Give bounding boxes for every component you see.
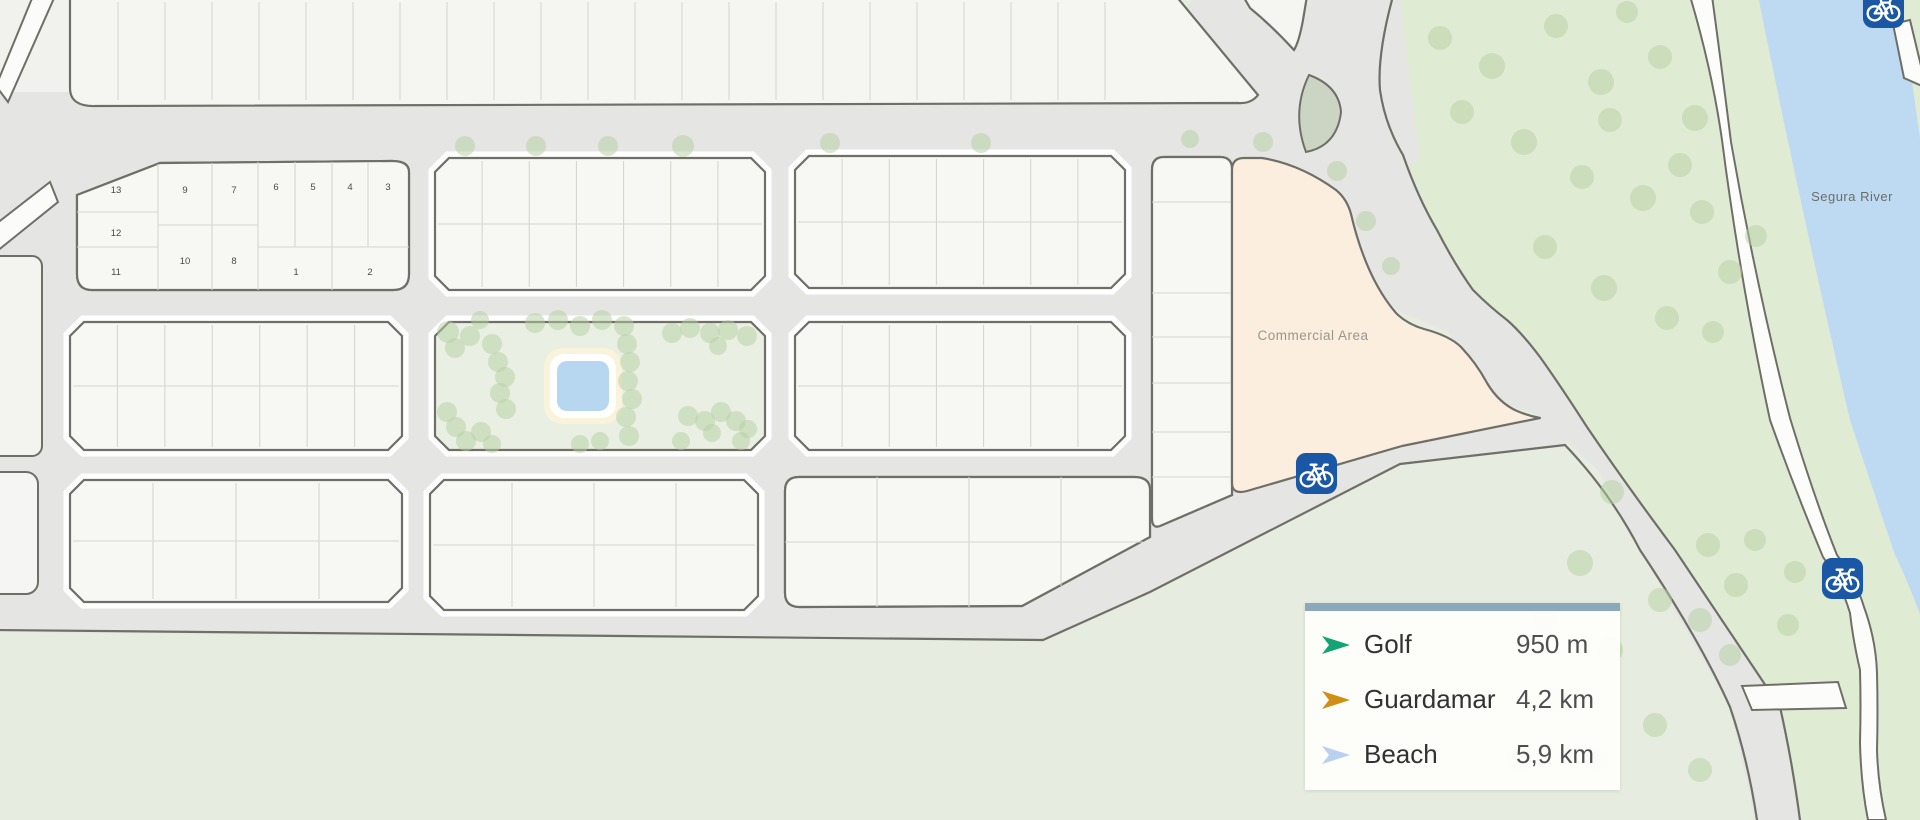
tree-icon <box>1643 713 1667 737</box>
tree-icon <box>614 316 634 336</box>
tree-icon <box>460 326 480 346</box>
pond <box>557 361 609 411</box>
tree-icon <box>570 316 590 336</box>
plot-number: 2 <box>367 267 372 278</box>
top-block <box>70 0 1258 106</box>
tree-icon <box>1655 306 1679 330</box>
tree-icon <box>1600 480 1624 504</box>
tree-icon <box>718 320 738 340</box>
tree-icon <box>1648 45 1672 69</box>
tree-icon <box>971 133 991 153</box>
tree-icon <box>680 318 700 338</box>
tree-icon <box>662 323 682 343</box>
tree-icon <box>620 352 640 372</box>
tree-icon <box>1690 200 1714 224</box>
plot-number: 5 <box>310 182 315 193</box>
plot-number: 9 <box>182 185 187 196</box>
tree-icon <box>571 435 589 453</box>
tree-icon <box>525 313 545 333</box>
tree-icon <box>703 424 721 442</box>
tree-icon <box>1591 275 1617 301</box>
site-plan-page: Commercial Area Segura River 13121191078… <box>0 0 1920 820</box>
tree-icon <box>1682 105 1708 131</box>
tree-icon <box>598 136 618 156</box>
tree-icon <box>619 426 639 446</box>
river-branch-road <box>1742 682 1846 710</box>
legend-value: 5,9 km <box>1516 739 1594 770</box>
numbered-block <box>77 161 409 290</box>
plot-number: 12 <box>111 228 122 239</box>
narrow-block <box>1152 157 1232 527</box>
tree-icon <box>1588 69 1614 95</box>
legend-row-golf: Golf 950 m <box>1305 617 1620 672</box>
tree-icon <box>1745 225 1767 247</box>
tree-icon <box>618 371 638 391</box>
legend-value: 950 m <box>1516 629 1588 660</box>
tree-icon <box>483 435 501 453</box>
tree-icon <box>1718 260 1742 284</box>
tree-icon <box>737 326 757 346</box>
tree-icon <box>548 310 568 330</box>
legend-row-beach: Beach 5,9 km <box>1305 727 1620 782</box>
tree-icon <box>1356 211 1376 231</box>
bicycle-sign-icon[interactable] <box>1822 558 1863 599</box>
tree-icon <box>1784 561 1806 583</box>
tree-icon <box>1567 550 1593 576</box>
tree-icon <box>1570 165 1594 189</box>
tree-icon <box>1688 758 1712 782</box>
tree-icon <box>1533 235 1557 259</box>
tree-icon <box>616 407 636 427</box>
tree-icon <box>1181 130 1199 148</box>
plot-number: 10 <box>180 256 191 267</box>
tree-icon <box>591 432 609 450</box>
tree-icon <box>1630 185 1656 211</box>
tree-icon <box>1253 132 1273 152</box>
tree-icon <box>471 311 489 329</box>
legend-label: Beach <box>1364 739 1516 770</box>
river-label: Segura River <box>1811 189 1893 204</box>
golf-arrow-icon <box>1322 635 1350 655</box>
tree-icon <box>455 136 475 156</box>
tree-icon <box>1382 257 1400 275</box>
tree-icon <box>1719 644 1741 666</box>
narrow-block-outline <box>1152 157 1232 527</box>
commercial-area-label: Commercial Area <box>1257 328 1368 343</box>
legend-rows: Golf 950 m Guardamar 4,2 km Beach 5,9 km <box>1305 611 1620 782</box>
tree-icon <box>496 399 516 419</box>
tree-icon <box>592 310 612 330</box>
tree-icon <box>1616 1 1638 23</box>
site-plan-map: Commercial Area Segura River 13121191078… <box>0 0 1920 820</box>
tree-icon <box>1511 129 1537 155</box>
bicycle-sign-icon[interactable] <box>1296 453 1337 494</box>
guardamar-arrow-icon <box>1322 690 1350 710</box>
plot-number: 7 <box>231 185 236 196</box>
tree-icon <box>617 334 637 354</box>
tree-icon <box>1327 161 1347 181</box>
legend-row-guardamar: Guardamar 4,2 km <box>1305 672 1620 727</box>
left-corner-block <box>0 472 38 594</box>
tree-icon <box>1544 14 1568 38</box>
plot-number: 11 <box>111 267 121 278</box>
tree-icon <box>1724 573 1748 597</box>
tree-icon <box>1428 26 1452 50</box>
distance-legend: Golf 950 m Guardamar 4,2 km Beach 5,9 km <box>1305 603 1620 790</box>
tree-icon <box>1688 608 1712 632</box>
park-pond <box>544 348 622 424</box>
plot-number: 13 <box>111 185 122 196</box>
plot-number: 1 <box>293 267 298 278</box>
legend-top-bar <box>1305 603 1620 611</box>
beach-arrow-icon <box>1322 745 1350 765</box>
tree-icon <box>622 389 642 409</box>
plot-number: 6 <box>273 182 278 193</box>
tree-icon <box>672 432 690 450</box>
tree-icon <box>678 406 698 426</box>
plot-number: 3 <box>385 182 390 193</box>
legend-label: Guardamar <box>1364 684 1516 715</box>
legend-value: 4,2 km <box>1516 684 1594 715</box>
bicycle-sign-icon[interactable] <box>1863 0 1904 28</box>
tree-icon <box>1702 321 1724 343</box>
tree-icon <box>1648 588 1672 612</box>
tree-icon <box>1696 533 1720 557</box>
tree-icon <box>1479 53 1505 79</box>
tree-icon <box>1598 108 1622 132</box>
tree-icon <box>482 334 502 354</box>
plot-number: 4 <box>347 182 352 193</box>
tree-icon <box>672 135 694 157</box>
legend-label: Golf <box>1364 629 1516 660</box>
tree-icon <box>1744 529 1766 551</box>
tree-icon <box>526 136 546 156</box>
plot-number: 8 <box>231 256 236 267</box>
tree-icon <box>1668 153 1692 177</box>
left-strip-block <box>0 256 42 456</box>
tree-icon <box>709 337 727 355</box>
top-blocks <box>70 0 1307 106</box>
tree-icon <box>1450 100 1474 124</box>
tree-icon <box>820 133 840 153</box>
tree-icon <box>1777 614 1799 636</box>
tree-icon <box>732 432 750 450</box>
